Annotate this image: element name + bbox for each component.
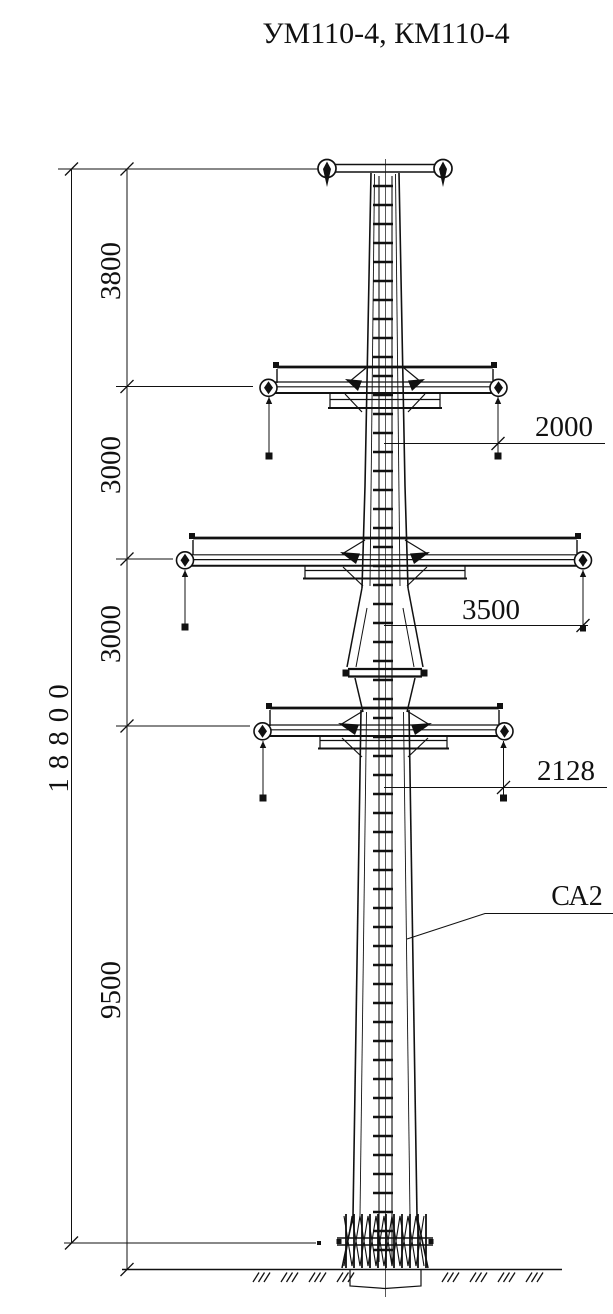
pole-edge-right-lower: [409, 710, 417, 1216]
ground-hatch: [253, 1273, 259, 1283]
pole-edge-left-lower: [353, 710, 361, 1216]
dim-label-3500: 3500: [462, 594, 520, 626]
leader-line-ca2: [407, 914, 613, 940]
dim-label-2000: 2000: [535, 411, 593, 443]
dim-label-3800: 3800: [95, 242, 127, 300]
part-label-ca2: СА2: [551, 881, 603, 912]
dim-label-3000-lower: 3000: [95, 605, 127, 663]
drawing-title: УМ110-4, КМ110-4: [262, 17, 509, 50]
pole-edge-right-upper: [399, 173, 408, 588]
technical-drawing-sheet: УМ110-4, КМ110-4380030003000950018800200…: [40, 16, 613, 1298]
pole-edge-left-upper: [362, 173, 371, 588]
dim-label-9500: 9500: [95, 961, 127, 1019]
dim-label-3000-upper: 3000: [95, 436, 127, 494]
dim-label-18800: 18800: [43, 675, 75, 793]
dim-label-2128: 2128: [537, 755, 595, 787]
tower-drawing: УМ110-4, КМ110-4380030003000950018800200…: [40, 16, 613, 1298]
